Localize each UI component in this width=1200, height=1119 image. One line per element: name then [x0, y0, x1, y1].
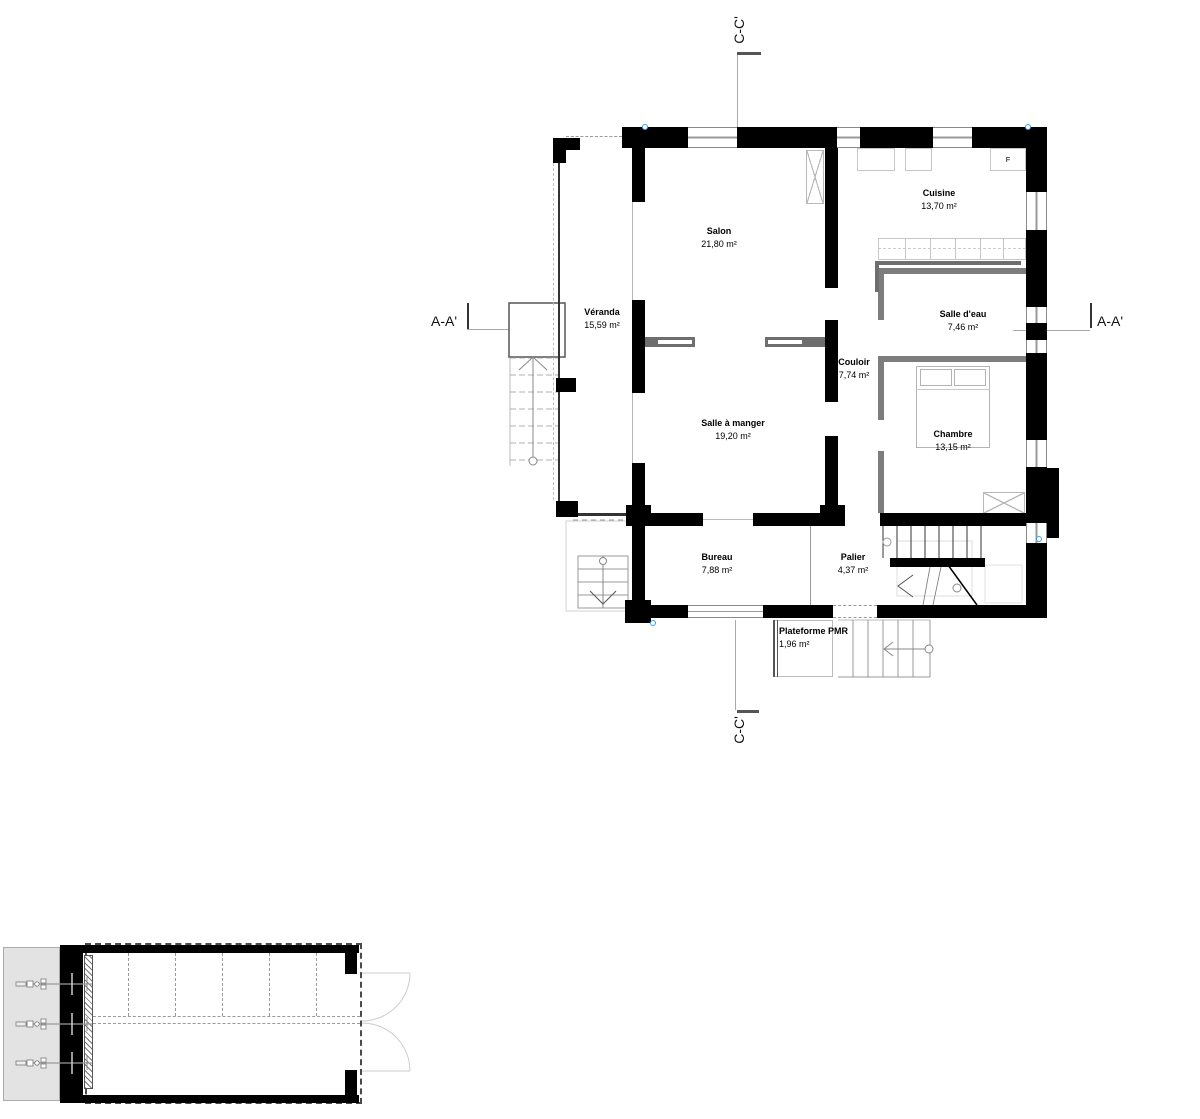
- wall-segment: [825, 436, 838, 515]
- section-tick-aa-right: [1090, 303, 1092, 328]
- bureau-palier-divider: [810, 526, 811, 605]
- wall-segment: [651, 605, 688, 618]
- wall-corner: [626, 505, 651, 526]
- exterior-stair-south: [834, 617, 934, 681]
- room-area: 4,37 m²: [838, 564, 869, 577]
- counter-divider: [1003, 238, 1004, 260]
- counter-divider: [980, 238, 981, 260]
- wall-segment: [877, 605, 1047, 618]
- wall-segment: [1026, 148, 1047, 192]
- section-marker-cc-top: C-C': [731, 8, 747, 52]
- wall-segment: [1026, 543, 1047, 605]
- veranda-roof-dashed-line: [566, 136, 622, 137]
- room-label-salle-deau: Salle d'eau 7,46 m²: [940, 308, 987, 334]
- room-area: 13,15 m²: [933, 441, 972, 454]
- window: [1026, 440, 1047, 467]
- veranda-south-wall: [578, 513, 632, 516]
- window: [933, 127, 972, 148]
- garage-double-door: [358, 963, 416, 1079]
- room-area: 15,59 m²: [584, 319, 620, 332]
- room-name: Bureau: [701, 551, 732, 564]
- ceiling-dashed-line: [93, 1016, 360, 1017]
- section-marker-cc-bottom: C-C': [731, 708, 747, 752]
- wall-segment: [632, 515, 645, 605]
- veranda-west-wall: [558, 150, 560, 515]
- entrance-door-opening: [833, 605, 877, 618]
- closet: [983, 492, 1025, 514]
- fridge-label: F: [990, 155, 1026, 164]
- wall-segment: [622, 127, 688, 148]
- wall-pilaster: [1047, 468, 1059, 538]
- ceiling-dashed-line: [93, 1023, 360, 1024]
- room-name: Véranda: [584, 306, 620, 319]
- ceiling-dashed-line: [128, 953, 129, 1016]
- kitchen-counter-edge: [875, 261, 1021, 265]
- partition-salle-deau-south: [878, 356, 1026, 362]
- room-name: Salon: [701, 225, 737, 238]
- room-area: 7,74 m²: [838, 369, 870, 382]
- section-tick-aa-left: [467, 303, 469, 330]
- veranda-corner-pier: [553, 150, 566, 163]
- wall-segment: [825, 320, 838, 402]
- room-label-plateforme-pmr: Plateforme PMR 1,96 m²: [779, 625, 848, 651]
- wall-segment: [651, 513, 703, 526]
- wall-segment: [1026, 467, 1047, 523]
- selection-handle[interactable]: [1036, 536, 1042, 542]
- wall-segment: [860, 127, 933, 148]
- room-name: Cuisine: [921, 187, 957, 200]
- opening-face-line: [632, 393, 633, 463]
- partition-chambre-west-upper: [878, 362, 884, 420]
- room-label-salle-a-manger: Salle à manger 19,20 m²: [701, 417, 765, 443]
- wall-segment: [1026, 353, 1047, 440]
- room-label-salon: Salon 21,80 m²: [701, 225, 737, 251]
- selection-handle[interactable]: [650, 620, 656, 626]
- wall-corner: [820, 505, 845, 526]
- garage-east-wall-stub: [345, 953, 357, 974]
- wall-segment: [632, 300, 645, 393]
- anchor: [16, 1052, 92, 1074]
- wall-segment: [632, 148, 645, 202]
- wall-segment: [825, 148, 838, 288]
- veranda-south-pier: [556, 501, 578, 517]
- veranda-corner-pier: [553, 138, 580, 150]
- room-name: Chambre: [933, 428, 972, 441]
- room-label-cuisine: Cuisine 13,70 m²: [921, 187, 957, 213]
- room-name: Palier: [838, 551, 869, 564]
- room-name: Salle à manger: [701, 417, 765, 430]
- sliding-door-left-slot: [658, 340, 692, 344]
- opening-face-line: [632, 202, 633, 300]
- room-area: 1,96 m²: [779, 638, 848, 651]
- window: [837, 127, 860, 148]
- kitchen-counter-unit: [857, 148, 895, 171]
- window: [1026, 307, 1047, 323]
- window: [1026, 192, 1047, 230]
- pmr-platform-edge: [773, 620, 775, 677]
- bed-pillow: [954, 369, 986, 386]
- ceiling-dashed-line: [269, 953, 270, 1016]
- room-name: Salle d'eau: [940, 308, 987, 321]
- window: [688, 127, 737, 148]
- wall-segment: [1026, 323, 1047, 340]
- sliding-door-right-slot: [768, 340, 802, 344]
- bed-cover-line: [916, 389, 990, 390]
- ground-anchors: [14, 970, 98, 1074]
- section-marker-aa-right: A-A': [1097, 313, 1123, 329]
- selection-handle[interactable]: [642, 124, 648, 130]
- garage-east-wall-stub: [345, 1070, 357, 1095]
- section-tick-cc-top: [737, 52, 761, 55]
- room-label-veranda: Véranda 15,59 m²: [584, 306, 620, 332]
- partition-salle-deau-north: [878, 268, 1026, 274]
- veranda-glazing-dashed-line: [553, 163, 554, 500]
- window: [688, 605, 763, 618]
- pmr-platform-edge: [777, 620, 779, 677]
- anchor: [16, 1013, 92, 1035]
- wall-segment: [880, 513, 1026, 526]
- room-area: 7,88 m²: [701, 564, 732, 577]
- chimney-duct: [806, 150, 824, 204]
- bed-pillow: [920, 369, 952, 386]
- room-label-couloir: Couloir 7,74 m²: [838, 356, 870, 382]
- section-marker-aa-left: A-A': [431, 313, 457, 329]
- kitchen-counter-edge-return: [875, 265, 879, 292]
- wall-segment: [972, 127, 1047, 148]
- wall-segment: [1026, 230, 1047, 307]
- garage-south-wall: [83, 1095, 359, 1103]
- wall-segment: [737, 127, 837, 148]
- room-area: 13,70 m²: [921, 200, 957, 213]
- counter-dashed-line: [878, 248, 1026, 249]
- bureau-door-opening-line: [703, 519, 753, 520]
- room-area: 21,80 m²: [701, 238, 737, 251]
- selection-handle[interactable]: [1025, 124, 1031, 130]
- ceiling-dashed-line: [222, 953, 223, 1016]
- anchor: [16, 973, 92, 995]
- garage-north-wall: [83, 945, 359, 953]
- floor-plan-canvas: C-C' C-C' A-A' A-A': [0, 0, 1200, 1119]
- section-line-cc-bottom: [735, 620, 736, 710]
- room-area: 7,46 m²: [940, 321, 987, 334]
- ceiling-dashed-line: [316, 953, 317, 1016]
- counter-divider: [905, 238, 906, 260]
- window: [1026, 340, 1047, 353]
- room-area: 19,20 m²: [701, 430, 765, 443]
- counter-divider: [930, 238, 931, 260]
- room-name: Couloir: [838, 356, 870, 369]
- section-line-aa-right: [1013, 330, 1090, 331]
- kitchen-counter-unit: [905, 148, 932, 171]
- room-label-palier: Palier 4,37 m²: [838, 551, 869, 577]
- partition-chambre-west-lower: [878, 451, 884, 513]
- interior-staircase: [879, 514, 1027, 608]
- veranda-mid-pier: [556, 378, 576, 392]
- wall-segment: [763, 605, 833, 618]
- ceiling-dashed-line: [175, 953, 176, 1016]
- room-name: Plateforme PMR: [779, 625, 848, 638]
- counter-divider: [955, 238, 956, 260]
- section-line-cc-top: [737, 55, 738, 127]
- room-label-chambre: Chambre 13,15 m²: [933, 428, 972, 454]
- room-label-bureau: Bureau 7,88 m²: [701, 551, 732, 577]
